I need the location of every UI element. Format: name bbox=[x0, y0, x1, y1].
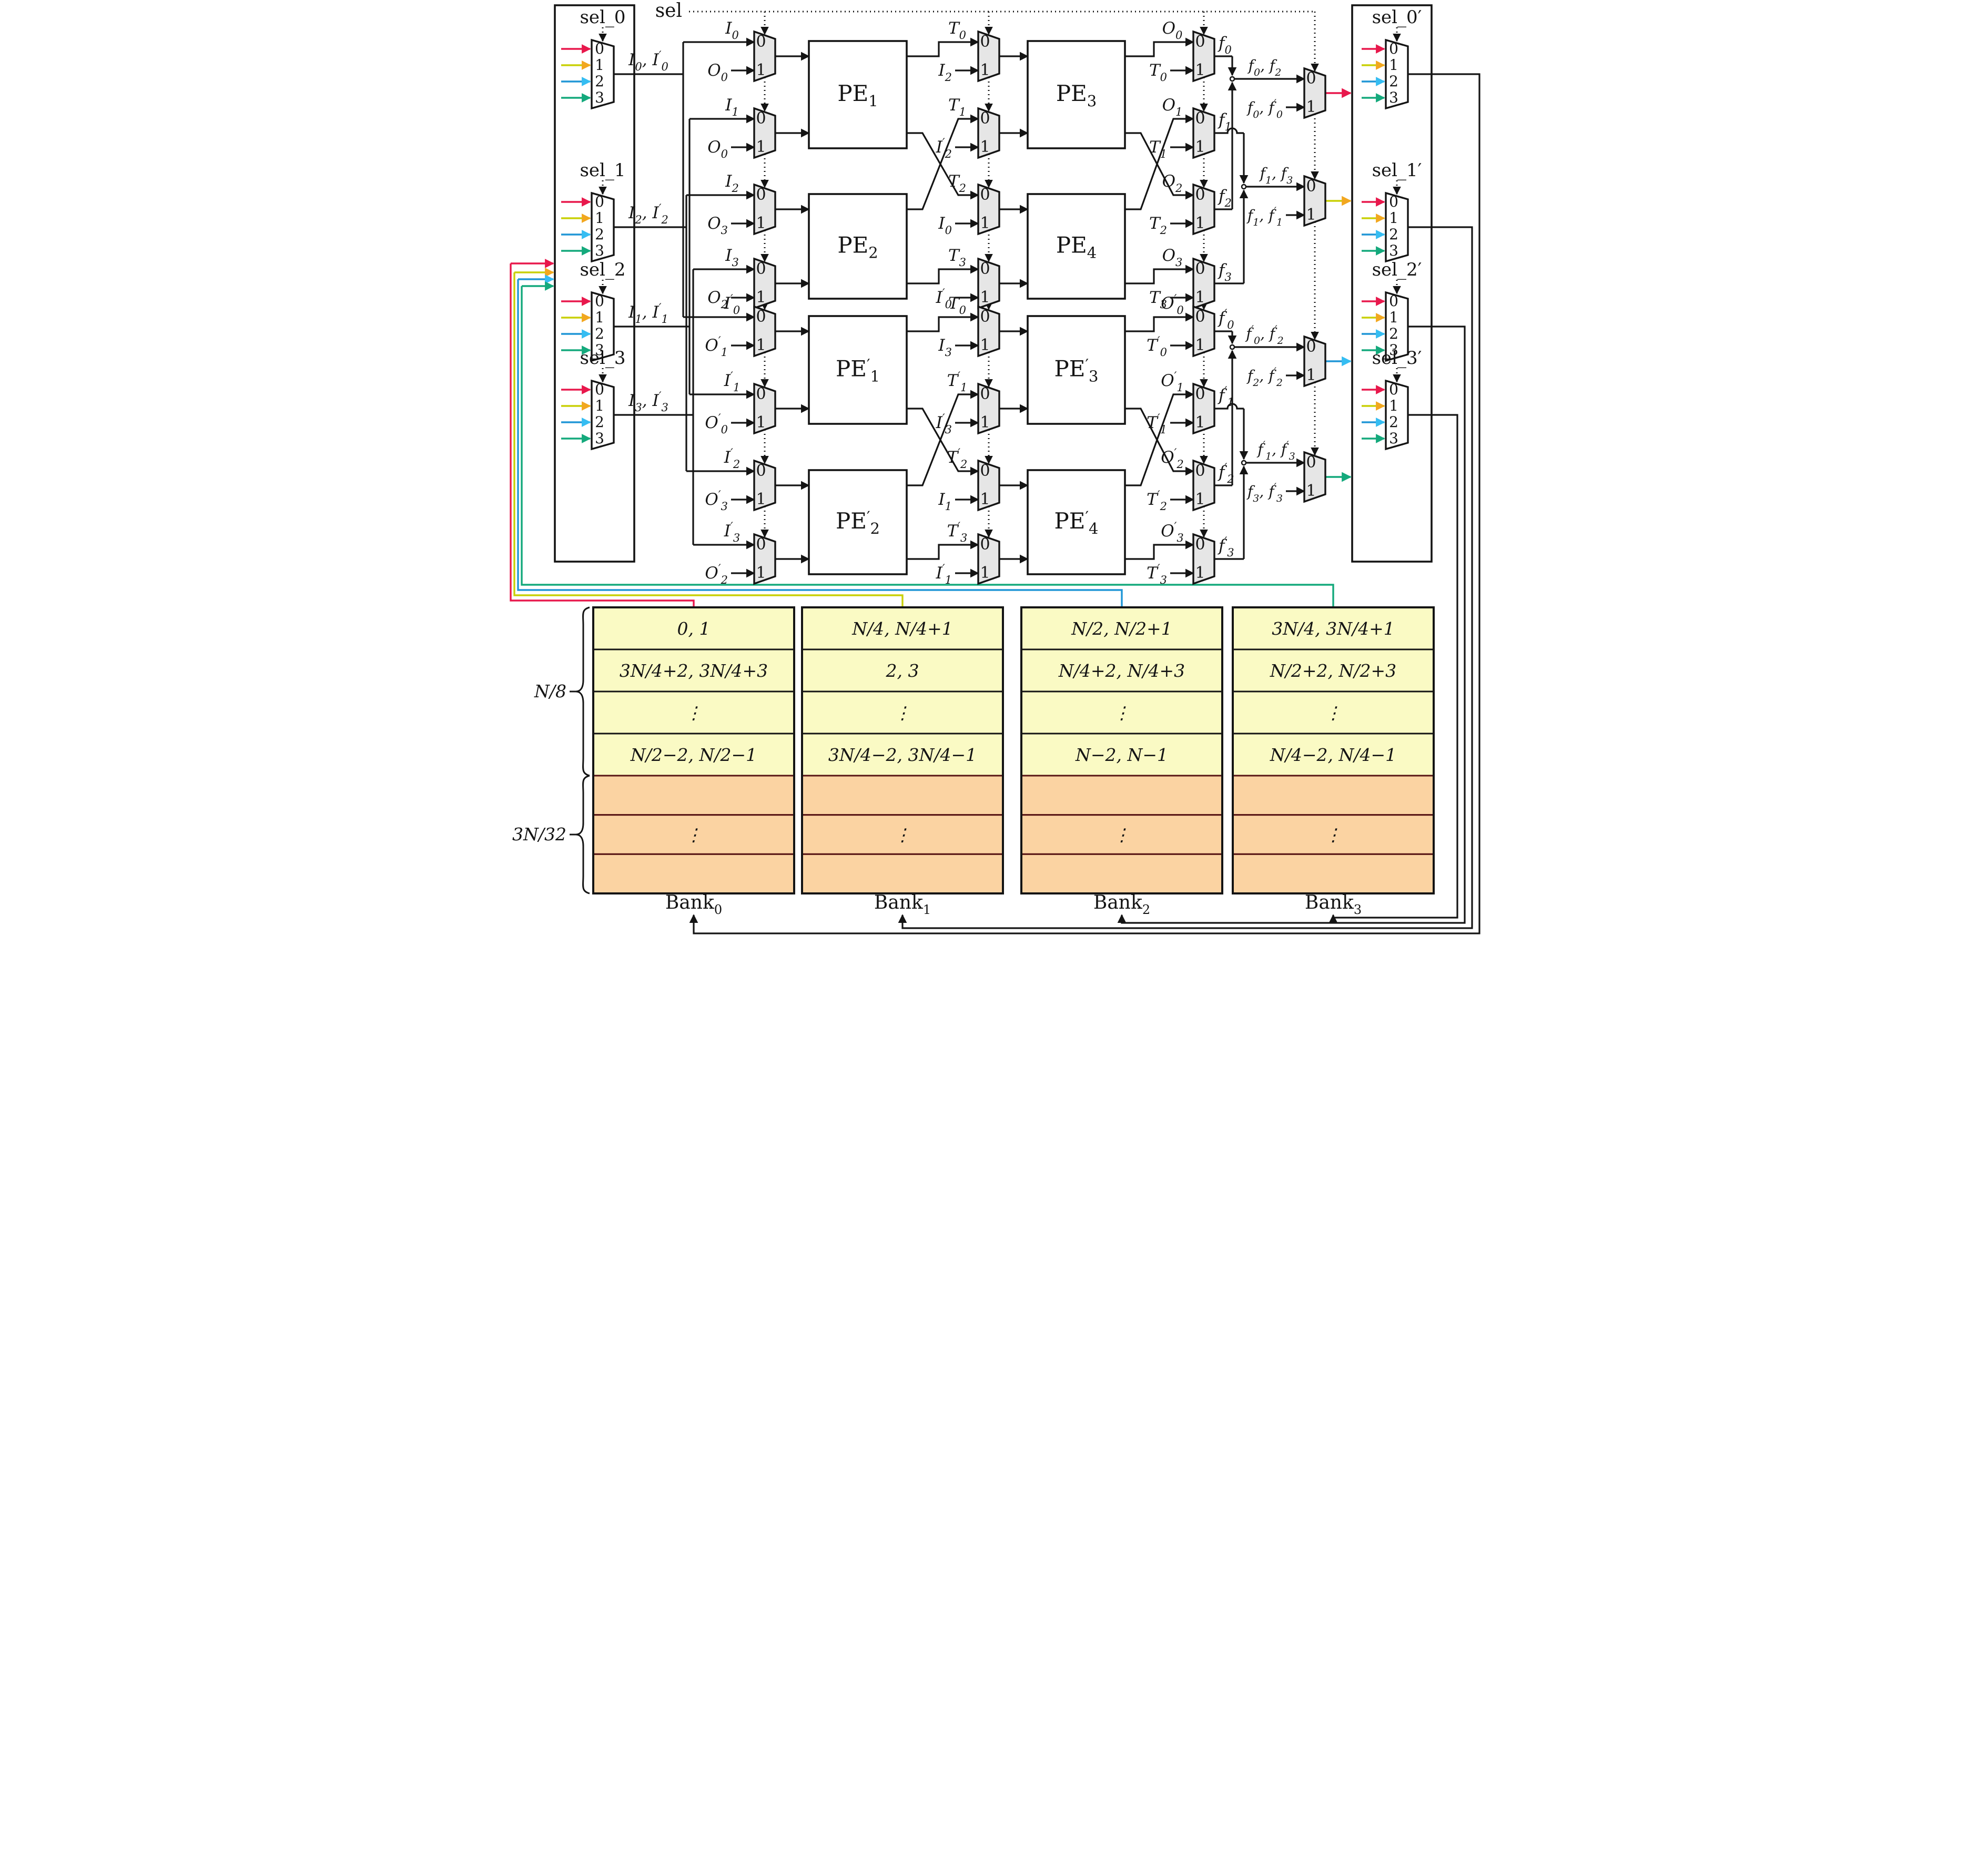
mid-mux-row2: 01 bbox=[978, 108, 999, 158]
mux-port-0: 0 bbox=[1389, 193, 1398, 210]
mux-port-1: 1 bbox=[756, 288, 766, 307]
final-in1-label: f3, f′3 bbox=[1246, 481, 1283, 504]
bank3-spare-row2 bbox=[1233, 854, 1434, 893]
stage-in0-label: O′2 bbox=[1161, 446, 1184, 471]
f-label: f′3 bbox=[1218, 535, 1234, 559]
mid-mux-row3: 01 bbox=[978, 185, 999, 234]
input-alt-label: O′3 bbox=[705, 489, 728, 513]
mux-port-0: 0 bbox=[756, 462, 766, 480]
mux-port-0: 0 bbox=[980, 260, 990, 278]
stage-in0-label: T2 bbox=[948, 172, 966, 195]
bank-cell-text: N/2, N/2+1 bbox=[1071, 618, 1172, 639]
yellow-read-wire bbox=[514, 272, 902, 607]
mux-port-0: 0 bbox=[1389, 292, 1398, 310]
bank-name: Bank2 bbox=[1093, 892, 1150, 917]
mux-port-2: 2 bbox=[595, 325, 604, 342]
mux-port-0: 0 bbox=[1195, 109, 1205, 128]
f-label: f3 bbox=[1218, 261, 1232, 283]
left-4to1-mux-0: 0123 bbox=[592, 40, 614, 108]
mux-port-1: 1 bbox=[756, 490, 766, 509]
bank-cell-text: N−2, N−1 bbox=[1075, 745, 1168, 765]
mux-port-2: 2 bbox=[595, 226, 604, 243]
stage-in1-label: I2 bbox=[938, 61, 952, 84]
bank-name: Bank3 bbox=[1305, 892, 1362, 917]
bank3-spare-row0 bbox=[1233, 776, 1434, 815]
final-mux-1: 01 bbox=[1304, 68, 1325, 118]
mux-port-1: 1 bbox=[756, 214, 766, 232]
mux-port-2: 2 bbox=[1389, 413, 1398, 431]
right-4to1-mux-0: 0123 bbox=[1386, 40, 1408, 108]
pe-label: PE′1 bbox=[836, 356, 880, 385]
sel-name: sel_1 bbox=[580, 160, 625, 181]
mux-port-1: 1 bbox=[980, 490, 990, 509]
mux-port-0: 0 bbox=[980, 535, 990, 554]
mux-port-1: 1 bbox=[595, 56, 604, 74]
mux-port-1: 1 bbox=[756, 138, 766, 156]
f-label: f2 bbox=[1218, 187, 1232, 209]
mux-port-0: 0 bbox=[595, 193, 604, 210]
pe-label: PE3 bbox=[1056, 80, 1097, 110]
stage-in0-label: T0 bbox=[948, 19, 966, 42]
bank-cell-text: ⋮ bbox=[894, 703, 911, 723]
mux-port-1: 1 bbox=[1389, 56, 1398, 74]
stage-in1-label: T1 bbox=[1149, 138, 1167, 160]
final-in0-label: f′1, f′3 bbox=[1256, 439, 1295, 462]
stage-in1-label: T2 bbox=[1149, 214, 1167, 237]
final-in1-label: f2, f′2 bbox=[1246, 365, 1283, 389]
mux-port-3: 3 bbox=[595, 242, 604, 259]
mux-port-1: 1 bbox=[595, 397, 604, 414]
mux-port-1: 1 bbox=[1389, 397, 1398, 414]
mid-mux-row7: 01 bbox=[978, 461, 999, 510]
out-mux-row6: 01 bbox=[1193, 384, 1214, 433]
bank1-spare-row2 bbox=[802, 854, 1003, 893]
stage-in0-label: T′2 bbox=[947, 446, 968, 471]
stage-wire bbox=[1125, 42, 1193, 56]
sel-name: sel_0 bbox=[580, 7, 625, 28]
mux-port-0: 0 bbox=[756, 186, 766, 204]
mux-port-1: 1 bbox=[1195, 490, 1205, 509]
stage-in1-label: I3 bbox=[938, 336, 952, 359]
mux-port-2: 2 bbox=[1389, 226, 1398, 243]
bank-cell-text: 0, 1 bbox=[677, 618, 711, 639]
pe-label: PE2 bbox=[837, 232, 878, 262]
mux-port-0: 0 bbox=[756, 260, 766, 278]
mux-port-1: 1 bbox=[1195, 138, 1205, 156]
mux-port-3: 3 bbox=[1389, 89, 1398, 106]
mux-port-0: 0 bbox=[1389, 40, 1398, 57]
bank1-spare-row0 bbox=[802, 776, 1003, 815]
mux-port-2: 2 bbox=[1389, 325, 1398, 342]
final-in1-label: f1, f′1 bbox=[1246, 205, 1283, 228]
input-mux-row4: 01 bbox=[754, 259, 775, 308]
mid-mux-row4: 01 bbox=[978, 259, 999, 308]
stage-in0-label: T′3 bbox=[947, 520, 968, 544]
input-alt-label: O′1 bbox=[705, 334, 728, 359]
out-mux-row3: 01 bbox=[1193, 185, 1214, 234]
mux-port-0: 0 bbox=[1195, 308, 1205, 326]
input-label: I1 bbox=[725, 96, 739, 118]
mux-port-0: 0 bbox=[595, 40, 604, 57]
mux-port-1: 1 bbox=[1306, 206, 1316, 224]
sel-name: sel_2′ bbox=[1372, 259, 1422, 280]
mux-port-1: 1 bbox=[756, 564, 766, 582]
stage-in0-label: T3 bbox=[948, 246, 966, 269]
mux-port-1: 1 bbox=[980, 336, 990, 354]
mid-mux-row1: 01 bbox=[978, 32, 999, 81]
brace-label: N/8 bbox=[534, 681, 566, 701]
input-label: I2 bbox=[725, 172, 739, 195]
brace-label: 3N/32 bbox=[512, 824, 566, 845]
bank-cell-text: 2, 3 bbox=[886, 660, 919, 681]
brace bbox=[576, 776, 590, 893]
input-alt-label: O′2 bbox=[705, 562, 728, 586]
mux-port-0: 0 bbox=[980, 308, 990, 326]
bank0-spare-row2 bbox=[593, 854, 794, 893]
stage-wire bbox=[1125, 545, 1193, 559]
mux-port-0: 0 bbox=[980, 462, 990, 480]
mid-mux-row6: 01 bbox=[978, 384, 999, 433]
mux-port-0: 0 bbox=[980, 33, 990, 51]
bank-spare-text: ⋮ bbox=[1113, 825, 1131, 845]
stage-in1-label: T′0 bbox=[1147, 334, 1167, 359]
mux-port-3: 3 bbox=[1389, 242, 1398, 259]
mux-port-1: 1 bbox=[1306, 482, 1316, 500]
bank2-spare-row0 bbox=[1021, 776, 1222, 815]
input-mux-row7: 01 bbox=[754, 461, 775, 510]
mux-port-1: 1 bbox=[1195, 288, 1205, 307]
mux-port-0: 0 bbox=[756, 33, 766, 51]
mux-port-3: 3 bbox=[1389, 430, 1398, 447]
bank-name: Bank1 bbox=[874, 892, 931, 917]
mux-columns: 0101010101010101010101010101010101010101… bbox=[754, 32, 1325, 584]
out-mux-row1: 01 bbox=[1193, 32, 1214, 81]
mux-port-0: 0 bbox=[595, 381, 604, 398]
stage-in0-label: T′1 bbox=[947, 370, 968, 394]
stage-in0-label: O′1 bbox=[1161, 370, 1184, 394]
memory-banks: 0, 13N/4+2, 3N/4+3⋮N/2−2, N/2−1⋮Bank0N/4… bbox=[512, 607, 1434, 917]
mux-port-1: 1 bbox=[595, 309, 604, 326]
input-alt-label: O0 bbox=[707, 138, 728, 160]
junction-node bbox=[1230, 345, 1234, 349]
mid-mux-row8: 01 bbox=[978, 534, 999, 584]
final-mux-2: 01 bbox=[1304, 176, 1325, 226]
mux-port-0: 0 bbox=[980, 385, 990, 403]
bank-cell-text: ⋮ bbox=[1325, 703, 1342, 723]
f-label: f0 bbox=[1218, 34, 1232, 56]
right-4to1-mux-1: 0123 bbox=[1386, 193, 1408, 261]
mux-port-0: 0 bbox=[1195, 186, 1205, 204]
mux-port-1: 1 bbox=[595, 209, 604, 227]
mux-port-1: 1 bbox=[980, 288, 990, 307]
stage-in0-label: O2 bbox=[1162, 172, 1183, 195]
pe-label: PE1 bbox=[837, 80, 878, 110]
mux-port-0: 0 bbox=[595, 292, 604, 310]
stage-in1-label: T′3 bbox=[1147, 562, 1167, 586]
mux-port-0: 0 bbox=[1306, 338, 1316, 356]
mux-port-2: 2 bbox=[1389, 73, 1398, 90]
pe-label: PE′3 bbox=[1054, 356, 1099, 385]
left-4to1-mux-1: 0123 bbox=[592, 193, 614, 261]
stage-wire bbox=[907, 545, 978, 559]
stage-in0-label: T1 bbox=[948, 96, 966, 118]
mux-port-0: 0 bbox=[1195, 260, 1205, 278]
sel-name: sel_2 bbox=[580, 259, 625, 280]
bank-cell-text: N/4, N/4+1 bbox=[851, 618, 953, 639]
mux-port-0: 0 bbox=[1195, 535, 1205, 554]
mux-port-1: 1 bbox=[980, 413, 990, 432]
f-label: f′0 bbox=[1218, 307, 1234, 331]
mux-port-1: 1 bbox=[756, 61, 766, 79]
left-4to1-mux-3: 0123 bbox=[592, 381, 614, 449]
f-collectors: f0f1f2f3f′0f′1f′2f′3f0, f2f0, f′0f1, f3f… bbox=[1214, 34, 1351, 559]
pe-blocks: PE1PE2PE3PE4PE′1PE′2PE′3PE′4 bbox=[809, 41, 1125, 574]
right-4to1-mux-3: 0123 bbox=[1386, 381, 1408, 449]
input-label: I3 bbox=[725, 246, 739, 269]
stage-in0-label: O3 bbox=[1162, 246, 1183, 269]
mux-port-1: 1 bbox=[980, 61, 990, 79]
input-label: I0 bbox=[725, 19, 739, 42]
input-label: I′3 bbox=[724, 520, 740, 544]
bank-cell-text: ⋮ bbox=[685, 703, 703, 723]
mux-port-0: 0 bbox=[1195, 462, 1205, 480]
input-label: I′0 bbox=[724, 292, 740, 317]
mux-port-1: 1 bbox=[756, 413, 766, 432]
mux-port-1: 1 bbox=[1195, 214, 1205, 232]
mux-port-3: 3 bbox=[595, 89, 604, 106]
input-mux-row5: 01 bbox=[754, 307, 775, 356]
junction-node bbox=[1242, 185, 1246, 189]
out-mux-row2: 01 bbox=[1193, 108, 1214, 158]
sel-name: sel_3 bbox=[580, 348, 625, 369]
final-mux-3: 01 bbox=[1304, 337, 1325, 386]
out-mux-row7: 01 bbox=[1193, 461, 1214, 510]
brace bbox=[576, 607, 590, 776]
bank-cell-text: N/4−2, N/4−1 bbox=[1270, 745, 1396, 765]
bank0-spare-row0 bbox=[593, 776, 794, 815]
stage-in1-label: T′2 bbox=[1147, 489, 1167, 513]
input-alt-label: O3 bbox=[707, 214, 728, 237]
mux-port-0: 0 bbox=[1306, 177, 1316, 196]
mux-port-0: 0 bbox=[1195, 385, 1205, 403]
final-in0-label: f1, f3 bbox=[1259, 165, 1293, 186]
pe-label: PE′4 bbox=[1054, 508, 1099, 537]
input-label: I′1 bbox=[724, 370, 740, 394]
stage-in1-label: T′1 bbox=[1147, 412, 1167, 436]
bank-spare-text: ⋮ bbox=[894, 825, 911, 845]
final-in0-label: f′0, f′2 bbox=[1245, 323, 1283, 347]
stage-wire bbox=[907, 42, 978, 56]
final-mux-4: 01 bbox=[1304, 452, 1325, 502]
mux-port-1: 1 bbox=[1195, 336, 1205, 354]
mux-port-0: 0 bbox=[756, 109, 766, 128]
mux-port-3: 3 bbox=[595, 430, 604, 447]
input-mux-row3: 01 bbox=[754, 185, 775, 234]
bank-cell-text: N/2−2, N/2−1 bbox=[630, 745, 757, 765]
stage-in1-label: I0 bbox=[938, 214, 952, 237]
input-mux-row1: 01 bbox=[754, 32, 775, 81]
mux-port-0: 0 bbox=[980, 109, 990, 128]
input-alt-label: O′0 bbox=[705, 412, 728, 436]
input-mux-row2: 01 bbox=[754, 108, 775, 158]
bank-spare-text: ⋮ bbox=[685, 825, 703, 845]
mux-port-2: 2 bbox=[595, 73, 604, 90]
input-alt-label: O0 bbox=[707, 61, 728, 84]
mux-port-0: 0 bbox=[756, 385, 766, 403]
datapath: I0O0I1O0I2O3I3O2I′0O′1I′1O′0I′2O′3I′3O′2… bbox=[705, 19, 1193, 586]
final-in0-label: f0, f2 bbox=[1247, 57, 1282, 78]
bank-cell-text: ⋮ bbox=[1113, 703, 1131, 723]
memory-based-fft-architecture-diagram: selI0O0I1O0I2O3I3O2I′0O′1I′1O′0I′2O′3I′3… bbox=[497, 0, 1491, 935]
mux-port-1: 1 bbox=[1306, 366, 1316, 384]
sel-name: sel_0′ bbox=[1372, 7, 1422, 28]
input-label: I′2 bbox=[724, 446, 740, 471]
bank2-spare-row2 bbox=[1021, 854, 1222, 893]
stage-wire bbox=[1125, 317, 1193, 331]
stage-wire bbox=[907, 269, 978, 283]
junction-node bbox=[1230, 77, 1234, 81]
stage-in0-label: O′0 bbox=[1161, 292, 1184, 317]
bank-cell-text: 3N/4+2, 3N/4+3 bbox=[620, 660, 768, 681]
pe-label: PE′2 bbox=[836, 508, 880, 537]
mux-port-1: 1 bbox=[1389, 309, 1398, 326]
mux-port-0: 0 bbox=[1389, 381, 1398, 398]
out-mux-row8: 01 bbox=[1193, 534, 1214, 584]
mux-port-0: 0 bbox=[1306, 69, 1316, 88]
stage-in0-label: O1 bbox=[1162, 96, 1183, 118]
mux-port-0: 0 bbox=[756, 535, 766, 554]
mux-port-1: 1 bbox=[1195, 564, 1205, 582]
mux-port-0: 0 bbox=[756, 308, 766, 326]
bank-name: Bank0 bbox=[665, 892, 722, 917]
junction-node bbox=[1242, 461, 1246, 465]
bank-cell-text: 3N/4−2, 3N/4−1 bbox=[828, 745, 977, 765]
mid-mux-row5: 01 bbox=[978, 307, 999, 356]
pe-label: PE4 bbox=[1056, 232, 1097, 262]
input-mux-row8: 01 bbox=[754, 534, 775, 584]
stage-wire bbox=[907, 317, 978, 331]
mux-port-1: 1 bbox=[1195, 61, 1205, 79]
bank-cell-text: N/4+2, N/4+3 bbox=[1058, 660, 1185, 681]
mux-port-1: 1 bbox=[1389, 209, 1398, 227]
out-mux-row5: 01 bbox=[1193, 307, 1214, 356]
stage-in1-label: I′1 bbox=[936, 562, 952, 586]
mux-port-0: 0 bbox=[980, 186, 990, 204]
mux-port-1: 1 bbox=[1195, 413, 1205, 432]
bank-spare-text: ⋮ bbox=[1325, 825, 1342, 845]
mux-port-0: 0 bbox=[1306, 453, 1316, 472]
mux-port-0: 0 bbox=[1195, 33, 1205, 51]
stage-in0-label: O0 bbox=[1162, 19, 1183, 42]
mux-port-1: 1 bbox=[980, 138, 990, 156]
mux-port-1: 1 bbox=[980, 564, 990, 582]
mux-port-1: 1 bbox=[756, 336, 766, 354]
sel-name: sel_3′ bbox=[1372, 348, 1422, 369]
stage-in0-label: O′3 bbox=[1161, 520, 1184, 544]
sel-label: sel bbox=[655, 0, 682, 22]
stage-in1-label: I1 bbox=[938, 490, 952, 513]
final-in1-label: f0, f′0 bbox=[1246, 97, 1283, 120]
mux-port-1: 1 bbox=[980, 214, 990, 232]
stage-in1-label: T0 bbox=[1149, 61, 1167, 84]
diagram-canvas: selI0O0I1O0I2O3I3O2I′0O′1I′1O′0I′2O′3I′3… bbox=[497, 0, 1491, 935]
bank-cell-text: N/2+2, N/2+3 bbox=[1270, 660, 1396, 681]
out-mux-row4: 01 bbox=[1193, 259, 1214, 308]
mux-port-2: 2 bbox=[595, 413, 604, 431]
mux-port-1: 1 bbox=[1306, 98, 1316, 116]
bank-cell-text: 3N/4, 3N/4+1 bbox=[1272, 618, 1395, 639]
input-mux-row6: 01 bbox=[754, 384, 775, 433]
sel-name: sel_1′ bbox=[1372, 160, 1422, 181]
stage-wire bbox=[1125, 269, 1193, 283]
